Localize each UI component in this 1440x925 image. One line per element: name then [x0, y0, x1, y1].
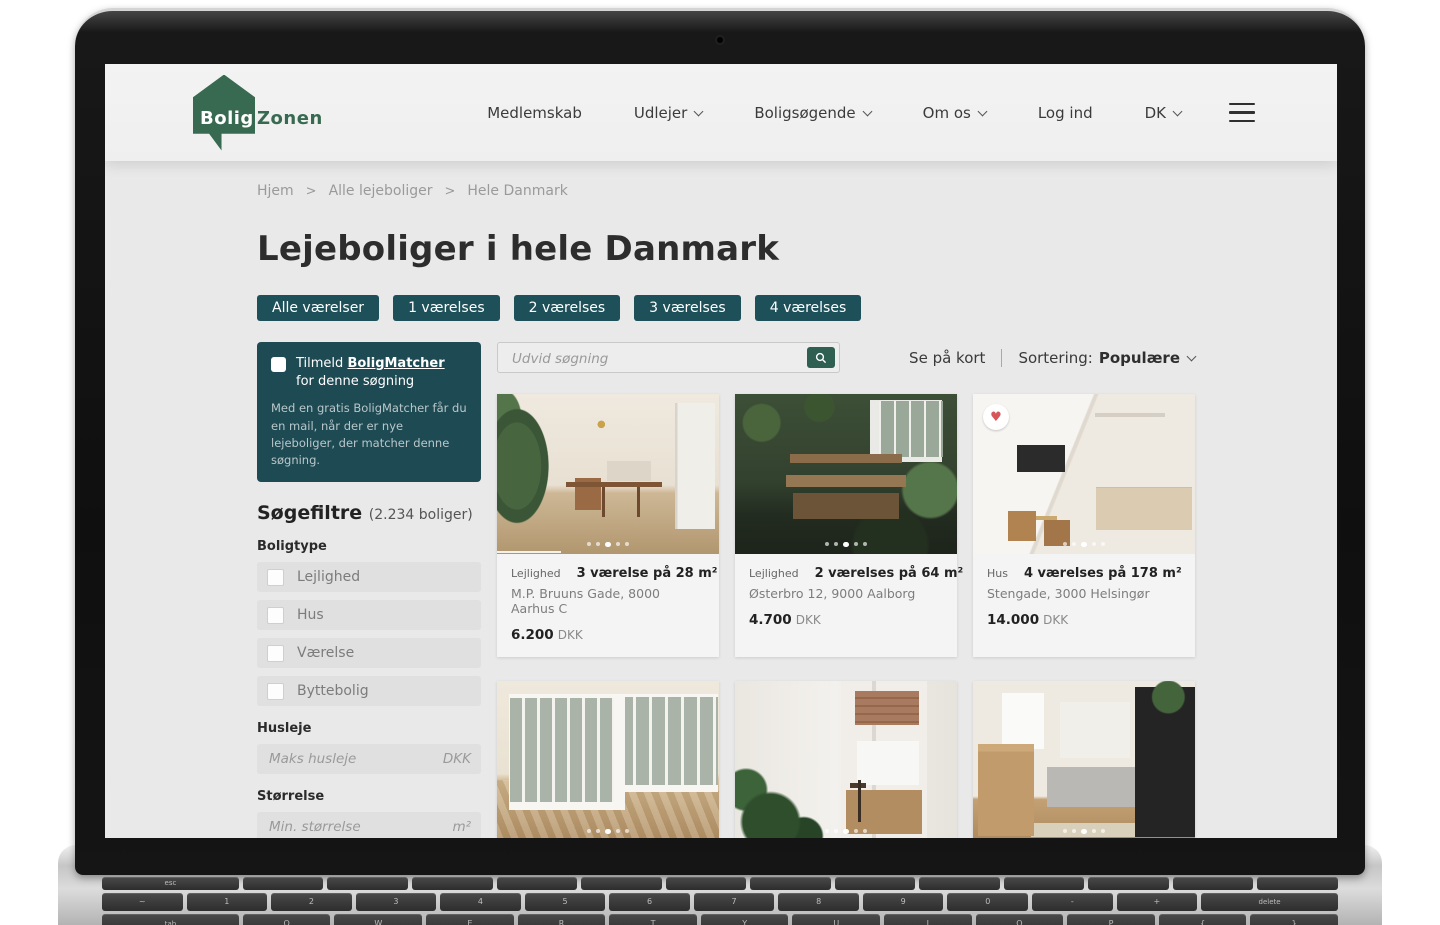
function-key	[1088, 877, 1169, 890]
filter-byttebolig[interactable]: Byttebolig	[257, 676, 481, 706]
carousel-dots	[735, 829, 957, 835]
carousel-dot[interactable]	[1092, 542, 1096, 546]
price-amount: 4.700	[749, 612, 792, 628]
property-title: 2 værelses på 64 m²	[815, 566, 964, 581]
number-key: 4	[440, 893, 521, 911]
nav-label: Udlejer	[634, 104, 687, 122]
property-title: 3 værelse på 28 m²	[577, 566, 718, 581]
letter-key: }	[1250, 914, 1338, 925]
letter-key: R	[518, 914, 606, 925]
filter-label: Hus	[297, 607, 324, 623]
carousel-dot[interactable]	[825, 829, 829, 833]
results-count: (2.234 boliger)	[369, 507, 473, 523]
boligzonen-logo[interactable]: Bolig Zonen	[193, 75, 353, 151]
nav-label: Log ind	[1038, 104, 1093, 122]
nav-item-medlemskab[interactable]: Medlemskab	[487, 104, 582, 122]
carousel-dots	[973, 829, 1195, 835]
maks-husleje-input[interactable]	[267, 750, 410, 768]
content: Tilmeld BoligMatcher for denne søgning M…	[257, 342, 1337, 838]
carousel-dot[interactable]	[1101, 829, 1105, 833]
checkbox-byttebolig[interactable]	[267, 683, 284, 700]
carousel-dot-active[interactable]	[605, 542, 611, 548]
carousel-dot-active[interactable]	[843, 542, 849, 548]
carousel-dot[interactable]	[625, 829, 629, 833]
property-card[interactable]: Lejlighed3 værelse på 28 m² M.P. Bruuns …	[497, 394, 719, 657]
function-key	[835, 877, 916, 890]
function-key	[1173, 877, 1254, 890]
carousel-dot[interactable]	[1072, 542, 1076, 546]
sort-value[interactable]: Populære	[1099, 349, 1180, 367]
carousel-dot[interactable]	[1063, 542, 1067, 546]
carousel-dot-active[interactable]	[1081, 542, 1087, 548]
filter-vaerelse[interactable]: Værelse	[257, 638, 481, 668]
letter-key: T	[609, 914, 697, 925]
tab-key: tab	[102, 914, 239, 925]
carousel-dot[interactable]	[596, 542, 600, 546]
boligmatcher-description: Med en gratis BoligMatcher får du en mai…	[271, 400, 467, 469]
function-key	[1257, 877, 1338, 890]
property-title: 4 værelses på 178 m²	[1024, 566, 1182, 581]
filter-sidebar: Tilmeld BoligMatcher for denne søgning M…	[257, 342, 481, 838]
tab-3-vaerelses[interactable]: 3 værelses	[634, 295, 741, 321]
filter-hus[interactable]: Hus	[257, 600, 481, 630]
carousel-dot[interactable]	[854, 542, 858, 546]
keyboard: esc ~1234567890-+ delete tab QWERTYUIOP{…	[102, 877, 1338, 925]
esc-key: esc	[102, 877, 239, 890]
carousel-dot[interactable]	[834, 829, 838, 833]
carousel-dots	[735, 542, 957, 548]
page-title: Lejeboliger i hele Danmark	[257, 229, 1337, 269]
tab-alle-vaerelser[interactable]: Alle værelser	[257, 295, 379, 321]
logo-text-bolig: Bolig	[200, 108, 254, 129]
hamburger-menu-icon[interactable]	[1229, 103, 1255, 122]
boligmatcher-link[interactable]: BoligMatcher	[347, 356, 444, 371]
number-key: 9	[863, 893, 944, 911]
carousel-dots	[973, 542, 1195, 548]
function-key	[666, 877, 747, 890]
nav-label: Boligsøgende	[754, 104, 855, 122]
husleje-label: Husleje	[257, 721, 481, 736]
nav-item-log-ind[interactable]: Log ind	[1038, 104, 1093, 122]
carousel-dot[interactable]	[854, 829, 858, 833]
boligmatcher-label-prefix: Tilmeld	[296, 356, 343, 371]
breadcrumb: Hjem > Alle lejeboliger > Hele Danmark	[257, 183, 1337, 199]
letter-key: E	[426, 914, 514, 925]
property-info: Lejlighed3 værelse på 28 m² M.P. Bruuns …	[497, 554, 719, 657]
price-currency: DKK	[1043, 613, 1068, 627]
nav-item-om-os[interactable]: Om os	[923, 104, 986, 122]
function-key	[327, 877, 408, 890]
number-key: 3	[356, 893, 437, 911]
filter-label: Byttebolig	[297, 683, 369, 699]
letter-key: {	[1159, 914, 1247, 925]
husleje-input-row: DKK	[257, 744, 481, 774]
stoerrelse-label: Størrelse	[257, 789, 481, 804]
property-photo[interactable]	[497, 394, 719, 554]
carousel-dot[interactable]	[863, 829, 867, 833]
chevron-down-icon[interactable]	[1187, 351, 1197, 361]
min-stoerrelse-input[interactable]	[267, 818, 410, 836]
number-key: -	[1032, 893, 1113, 911]
number-key: 2	[271, 893, 352, 911]
results-toolbar: Se på kort Sortering: Populære	[497, 342, 1195, 373]
property-info: Lejlighed2 værelses på 64 m² Østerbro 12…	[735, 554, 957, 642]
results-area: Se på kort Sortering: Populære	[497, 342, 1195, 838]
function-key	[750, 877, 831, 890]
number-keys: ~1234567890-+	[102, 893, 1197, 911]
divider	[1001, 349, 1002, 367]
function-key	[919, 877, 1000, 890]
checkbox-lejlighed[interactable]	[267, 569, 284, 586]
carousel-dot[interactable]	[616, 542, 620, 546]
letter-key: P	[1067, 914, 1155, 925]
property-address: M.P. Bruuns Gade, 8000 Aarhus C	[511, 586, 705, 616]
function-key	[243, 877, 324, 890]
carousel-dot-active[interactable]	[605, 829, 611, 835]
search-icon	[815, 352, 827, 364]
number-key: 0	[947, 893, 1028, 911]
number-key: 7	[694, 893, 775, 911]
letter-key: U	[792, 914, 880, 925]
nav-label: DK	[1145, 104, 1166, 122]
filter-lejlighed[interactable]: Lejlighed	[257, 562, 481, 592]
number-key: 8	[778, 893, 859, 911]
property-photo[interactable]	[735, 394, 957, 554]
nav-item-boligsogende[interactable]: Boligsøgende	[754, 104, 870, 122]
carousel-dot[interactable]	[834, 542, 838, 546]
boligmatcher-label: Tilmeld BoligMatcher for denne søgning	[296, 355, 445, 391]
chevron-down-icon	[1173, 106, 1183, 116]
browser-screen: Bolig Zonen Medlemskab Udlejer Boligsøge…	[105, 64, 1337, 838]
property-info: Hus4 værelses på 178 m² Stengade, 3000 H…	[973, 554, 1195, 642]
carousel-dot[interactable]	[1072, 829, 1076, 833]
property-price: 14.000DKK	[987, 612, 1181, 628]
function-key	[1004, 877, 1085, 890]
letter-key: I	[884, 914, 972, 925]
carousel-dot[interactable]	[1101, 542, 1105, 546]
function-key	[581, 877, 662, 890]
function-key	[497, 877, 578, 890]
letter-key: W	[334, 914, 422, 925]
property-price: 6.200DKK	[511, 627, 705, 643]
property-type: Hus	[987, 567, 1008, 580]
breadcrumb-hjem[interactable]: Hjem	[257, 183, 294, 199]
letter-keys: QWERTYUIOP{}	[243, 914, 1338, 925]
property-address: Østerbro 12, 9000 Aalborg	[749, 586, 943, 601]
chevron-down-icon	[694, 106, 704, 116]
filter-label: Lejlighed	[297, 569, 360, 585]
carousel-dot-active[interactable]	[1081, 829, 1087, 835]
carousel-progress-bar	[497, 551, 561, 553]
carousel-dots	[497, 829, 719, 835]
search-box	[497, 342, 840, 373]
property-card[interactable]: ♥ Hus4 værelses på 178 m² Stengade, 3000…	[973, 394, 1195, 657]
breadcrumb-separator: >	[445, 184, 456, 199]
property-card[interactable]: Lejlighed2 værelses på 56 m²	[735, 681, 957, 838]
carousel-dot[interactable]	[825, 542, 829, 546]
number-key: 5	[525, 893, 606, 911]
logo-text-zonen: Zonen	[257, 108, 323, 129]
boligmatcher-signup-box: Tilmeld BoligMatcher for denne søgning M…	[257, 342, 481, 482]
property-photo[interactable]	[735, 681, 957, 838]
property-price: 4.700DKK	[749, 612, 943, 628]
nav-label: Om os	[923, 104, 971, 122]
carousel-dot[interactable]	[587, 829, 591, 833]
carousel-dot[interactable]	[587, 542, 591, 546]
delete-key: delete	[1201, 893, 1338, 911]
keyboard-function-row: esc	[102, 877, 1338, 890]
carousel-dot-active[interactable]	[843, 829, 849, 835]
property-card[interactable]: Lejlighed3 værelses på 72 m²	[973, 681, 1195, 838]
property-type: Lejlighed	[511, 567, 561, 580]
dkk-unit: DKK	[443, 751, 471, 767]
carousel-dot[interactable]	[1063, 829, 1067, 833]
price-currency: DKK	[796, 613, 821, 627]
nav-label: Medlemskab	[487, 104, 582, 122]
sort-controls: Se på kort Sortering: Populære	[909, 349, 1195, 367]
site-header: Bolig Zonen Medlemskab Udlejer Boligsøge…	[105, 64, 1337, 161]
search-input[interactable]	[510, 343, 754, 374]
keyboard-number-row: ~1234567890-+ delete	[102, 893, 1338, 911]
price-amount: 14.000	[987, 612, 1039, 628]
search-filters-title: Søgefiltre	[257, 502, 362, 524]
sort-label: Sortering:	[1018, 349, 1092, 367]
carousel-dot[interactable]	[625, 542, 629, 546]
search-button[interactable]	[807, 347, 835, 368]
property-card[interactable]: Hus3 værelses på 107 m²	[497, 681, 719, 838]
filter-label: Værelse	[297, 645, 354, 661]
chevron-down-icon	[977, 106, 987, 116]
price-amount: 6.200	[511, 627, 554, 643]
carousel-dots	[497, 542, 719, 548]
carousel-dot[interactable]	[863, 542, 867, 546]
property-photo[interactable]	[973, 681, 1195, 838]
keyboard-letter-row: tab QWERTYUIOP{}	[102, 914, 1338, 925]
letter-key: O	[976, 914, 1064, 925]
webcam-icon	[717, 37, 723, 43]
breadcrumb-separator: >	[306, 184, 317, 199]
boligtype-label: Boligtype	[257, 539, 481, 554]
price-currency: DKK	[558, 628, 583, 642]
checkbox-vaerelse[interactable]	[267, 645, 284, 662]
number-key: +	[1117, 893, 1198, 911]
tab-1-vaerelses[interactable]: 1 værelses	[393, 295, 500, 321]
checkbox-hus[interactable]	[267, 607, 284, 624]
letter-key: Y	[701, 914, 789, 925]
number-key: 6	[609, 893, 690, 911]
breadcrumb-alle-lejeboliger[interactable]: Alle lejeboliger	[329, 183, 433, 199]
breadcrumb-hele-danmark: Hele Danmark	[467, 183, 567, 199]
function-keys	[243, 877, 1338, 890]
map-view-link[interactable]: Se på kort	[909, 349, 985, 367]
search-filters-heading: Søgefiltre (2.234 boliger)	[257, 502, 481, 524]
room-filter-tabs: Alle værelser 1 værelses 2 værelses 3 væ…	[257, 295, 1337, 321]
property-photo[interactable]	[497, 681, 719, 838]
letter-key: Q	[243, 914, 331, 925]
boligmatcher-label-suffix: for denne søgning	[296, 374, 414, 389]
favorite-heart-icon[interactable]: ♥	[983, 404, 1009, 430]
laptop-mockup: Bolig Zonen Medlemskab Udlejer Boligsøge…	[0, 0, 1440, 925]
property-card[interactable]: Lejlighed2 værelses på 64 m² Østerbro 12…	[735, 394, 957, 657]
carousel-dot[interactable]	[596, 829, 600, 833]
tab-2-vaerelses[interactable]: 2 værelses	[514, 295, 621, 321]
nav-item-udlejer[interactable]: Udlejer	[634, 104, 702, 122]
property-photo[interactable]: ♥	[973, 394, 1195, 554]
property-card-grid: Lejlighed3 værelse på 28 m² M.P. Bruuns …	[497, 394, 1195, 838]
m2-unit: m²	[452, 819, 471, 835]
property-type: Lejlighed	[749, 567, 799, 580]
tab-4-vaerelses[interactable]: 4 værelses	[755, 295, 862, 321]
number-key: ~	[102, 893, 183, 911]
number-key: 1	[187, 893, 268, 911]
language-selector-dk[interactable]: DK	[1145, 104, 1181, 122]
function-key	[412, 877, 493, 890]
main-nav: Medlemskab Udlejer Boligsøgende Om os Lo…	[487, 104, 1181, 122]
carousel-dot[interactable]	[1092, 829, 1096, 833]
boligmatcher-checkbox[interactable]	[271, 357, 286, 372]
property-address: Stengade, 3000 Helsingør	[987, 586, 1181, 601]
stoerrelse-input-row: m²	[257, 812, 481, 838]
carousel-dot[interactable]	[616, 829, 620, 833]
chevron-down-icon	[862, 106, 872, 116]
